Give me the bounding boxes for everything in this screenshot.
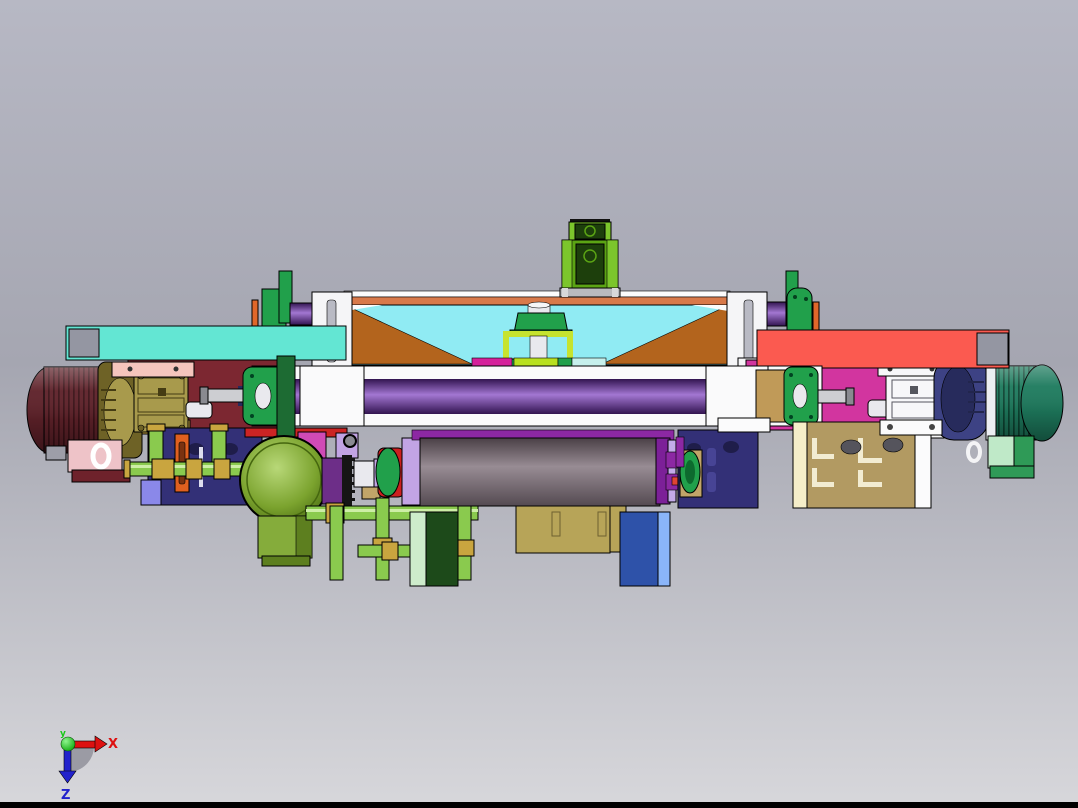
- cyan-feed-bar[interactable]: [66, 326, 346, 360]
- x-axis-arrow: [73, 741, 96, 748]
- y-axis-label: y: [60, 729, 66, 739]
- blue-base-block: [620, 512, 658, 586]
- lower-roller-assembly[interactable]: [412, 418, 770, 508]
- origin-sphere: [61, 737, 75, 751]
- lower-roller-drum: [420, 438, 660, 506]
- under-plate-strips: [472, 358, 606, 366]
- top-motor[interactable]: [560, 219, 620, 297]
- tan-base-block: [516, 506, 610, 553]
- bottom-edge-bar: [0, 802, 1078, 808]
- upper-roller-assembly[interactable]: [200, 366, 854, 426]
- red-feed-bar[interactable]: [757, 330, 1009, 368]
- z-axis-arrow: [64, 750, 71, 772]
- z-axis-label: Z: [61, 788, 70, 803]
- x-axis-label: X: [108, 737, 118, 752]
- right-mount-plate[interactable]: [793, 420, 942, 508]
- left-gearbox-body: [134, 372, 188, 432]
- dark-green-block: [426, 512, 458, 586]
- cad-viewport[interactable]: y X Z: [0, 0, 1078, 808]
